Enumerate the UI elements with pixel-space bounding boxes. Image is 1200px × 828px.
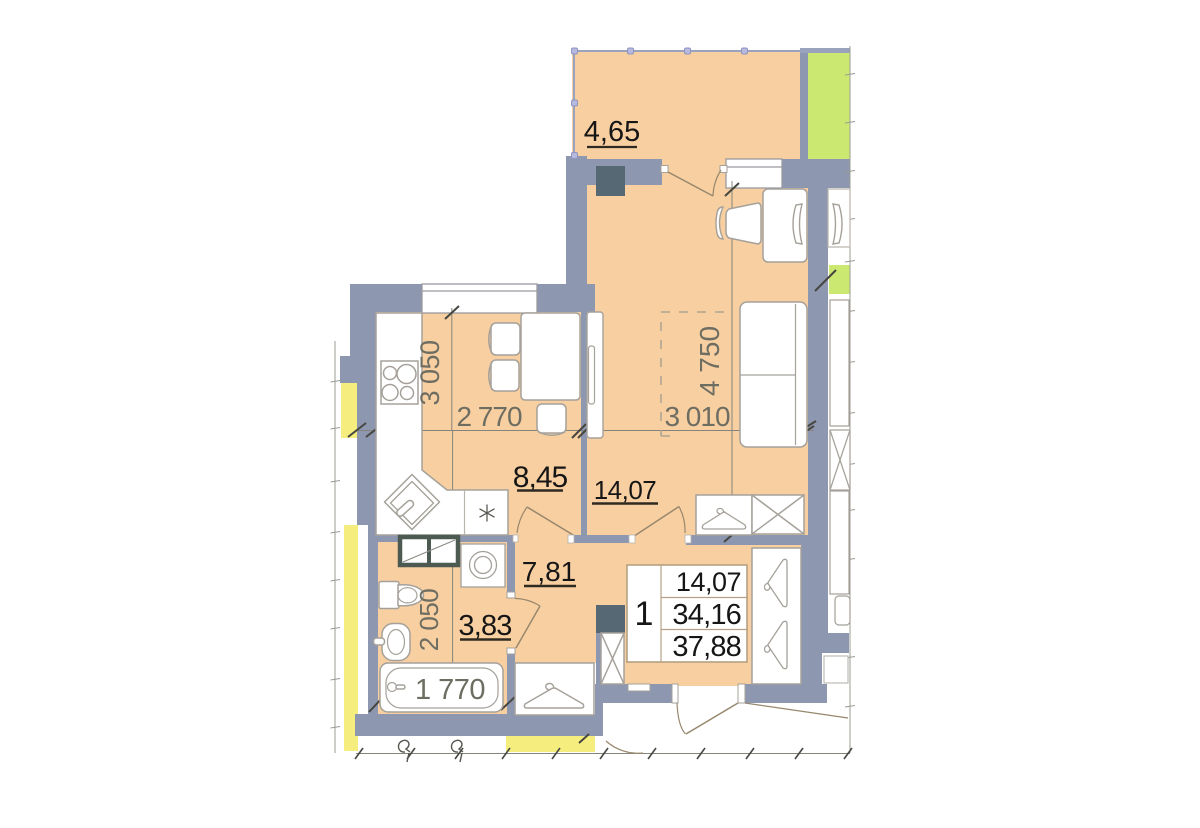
svg-text:14,07: 14,07 bbox=[594, 475, 657, 505]
svg-text:34,16: 34,16 bbox=[672, 599, 741, 631]
svg-text:1: 1 bbox=[635, 595, 654, 633]
svg-text:14,07: 14,07 bbox=[676, 567, 741, 597]
svg-text:2 050: 2 050 bbox=[414, 589, 444, 652]
svg-text:37,88: 37,88 bbox=[672, 631, 741, 663]
svg-text:3 050: 3 050 bbox=[415, 340, 445, 405]
svg-text:7,81: 7,81 bbox=[522, 556, 577, 587]
svg-text:4 750: 4 750 bbox=[694, 326, 725, 396]
svg-text:3 010: 3 010 bbox=[664, 401, 729, 432]
svg-text:8,45: 8,45 bbox=[513, 461, 568, 494]
svg-text:3,83: 3,83 bbox=[458, 610, 511, 642]
svg-text:4,65: 4,65 bbox=[584, 116, 640, 148]
svg-text:2 770: 2 770 bbox=[456, 401, 521, 432]
svg-text:1 770: 1 770 bbox=[415, 674, 485, 706]
